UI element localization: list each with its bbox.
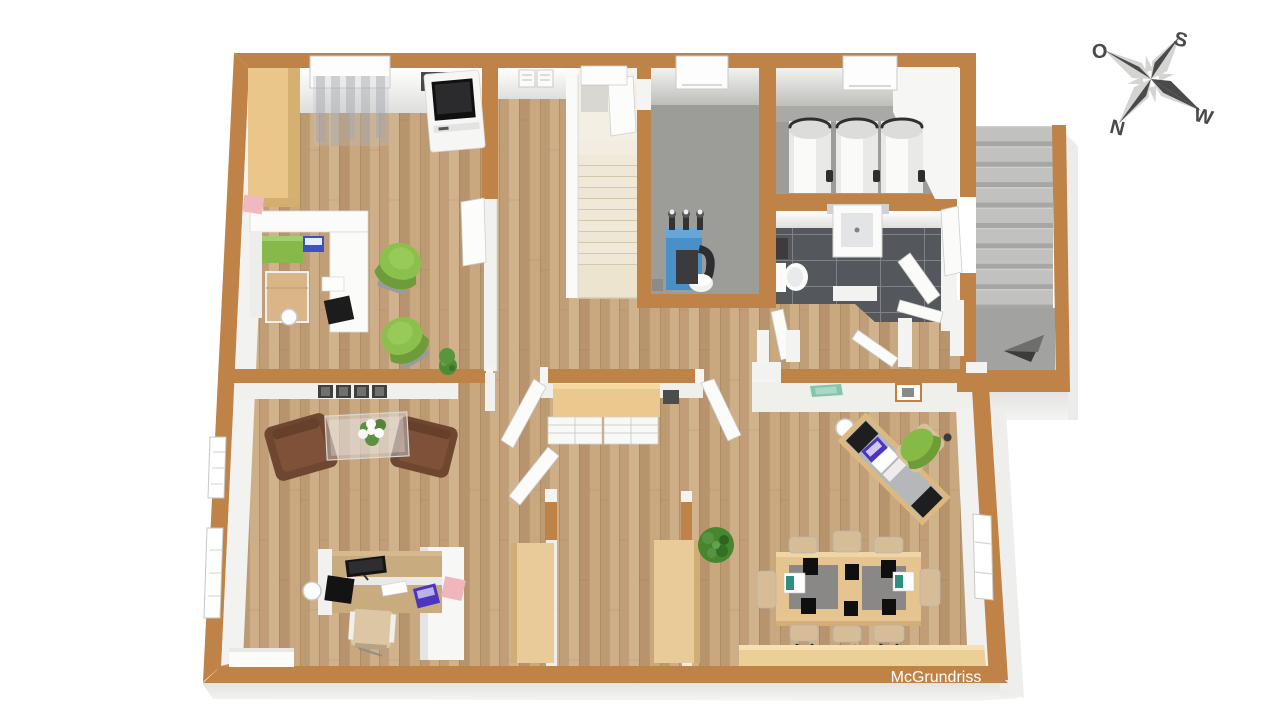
svg-text:O: O: [1091, 40, 1108, 63]
svg-text:McGrundriss: McGrundriss: [891, 669, 982, 686]
